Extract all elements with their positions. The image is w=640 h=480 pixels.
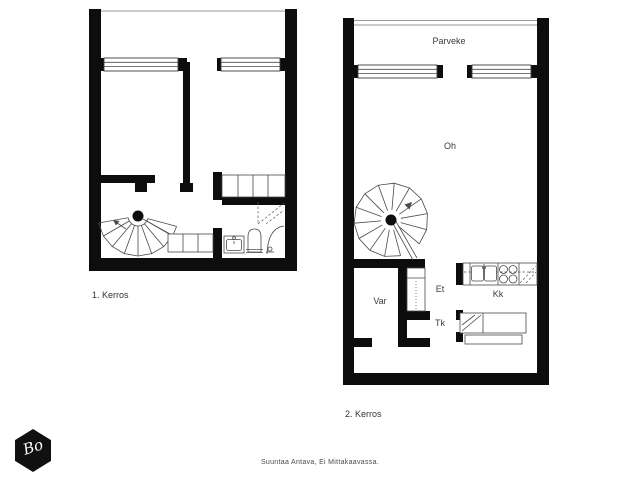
floor2-spiral-stairs — [354, 183, 427, 260]
window-icon — [221, 58, 280, 71]
fridge-icon — [460, 313, 526, 333]
floor1-walls — [89, 9, 297, 271]
floor2-kitchen — [460, 263, 537, 344]
window-icon — [358, 65, 437, 78]
floor2-label: 2. Kerros — [345, 409, 382, 419]
disclaimer-note: Suuntaa Antava, Ei Mittakaavassa. — [0, 459, 640, 466]
floorplan-drawing: 1. Kerros — [0, 0, 640, 480]
floor1-bathroom — [224, 202, 284, 254]
toilet-icon — [246, 229, 263, 253]
kitchen-bench — [465, 335, 522, 344]
floor1-closet-row — [222, 175, 285, 197]
floor2-balcony-railing — [354, 21, 537, 26]
room-label-parveke: Parveke — [432, 36, 465, 46]
floor1-spiral-stairs — [99, 211, 213, 257]
sink-icon — [224, 236, 244, 253]
shower-icon — [258, 202, 284, 224]
room-label-var: Var — [373, 296, 386, 306]
room-label-et: Et — [436, 284, 445, 294]
floor1-plan: 1. Kerros — [89, 9, 297, 300]
floor1-windows — [104, 58, 280, 71]
window-icon — [104, 58, 178, 71]
stair-newel-post — [386, 215, 397, 226]
floor1-label: 1. Kerros — [92, 290, 129, 300]
floor2-hall-closet — [407, 268, 425, 311]
floor2-plan: Parveke Oh Var Et Tk Kk 2. Kerros — [343, 18, 549, 419]
floor1-straight-treads — [168, 234, 213, 252]
stair-newel-post — [133, 211, 144, 222]
window-icon — [472, 65, 531, 78]
room-label-tk: Tk — [435, 318, 445, 328]
floor2-windows — [358, 65, 531, 78]
floorplan-page: { "colors": { "background": "#ffffff", "… — [0, 0, 640, 480]
room-label-kk: Kk — [493, 289, 504, 299]
room-label-oh: Oh — [444, 141, 456, 151]
corner-basin-icon — [266, 226, 284, 254]
